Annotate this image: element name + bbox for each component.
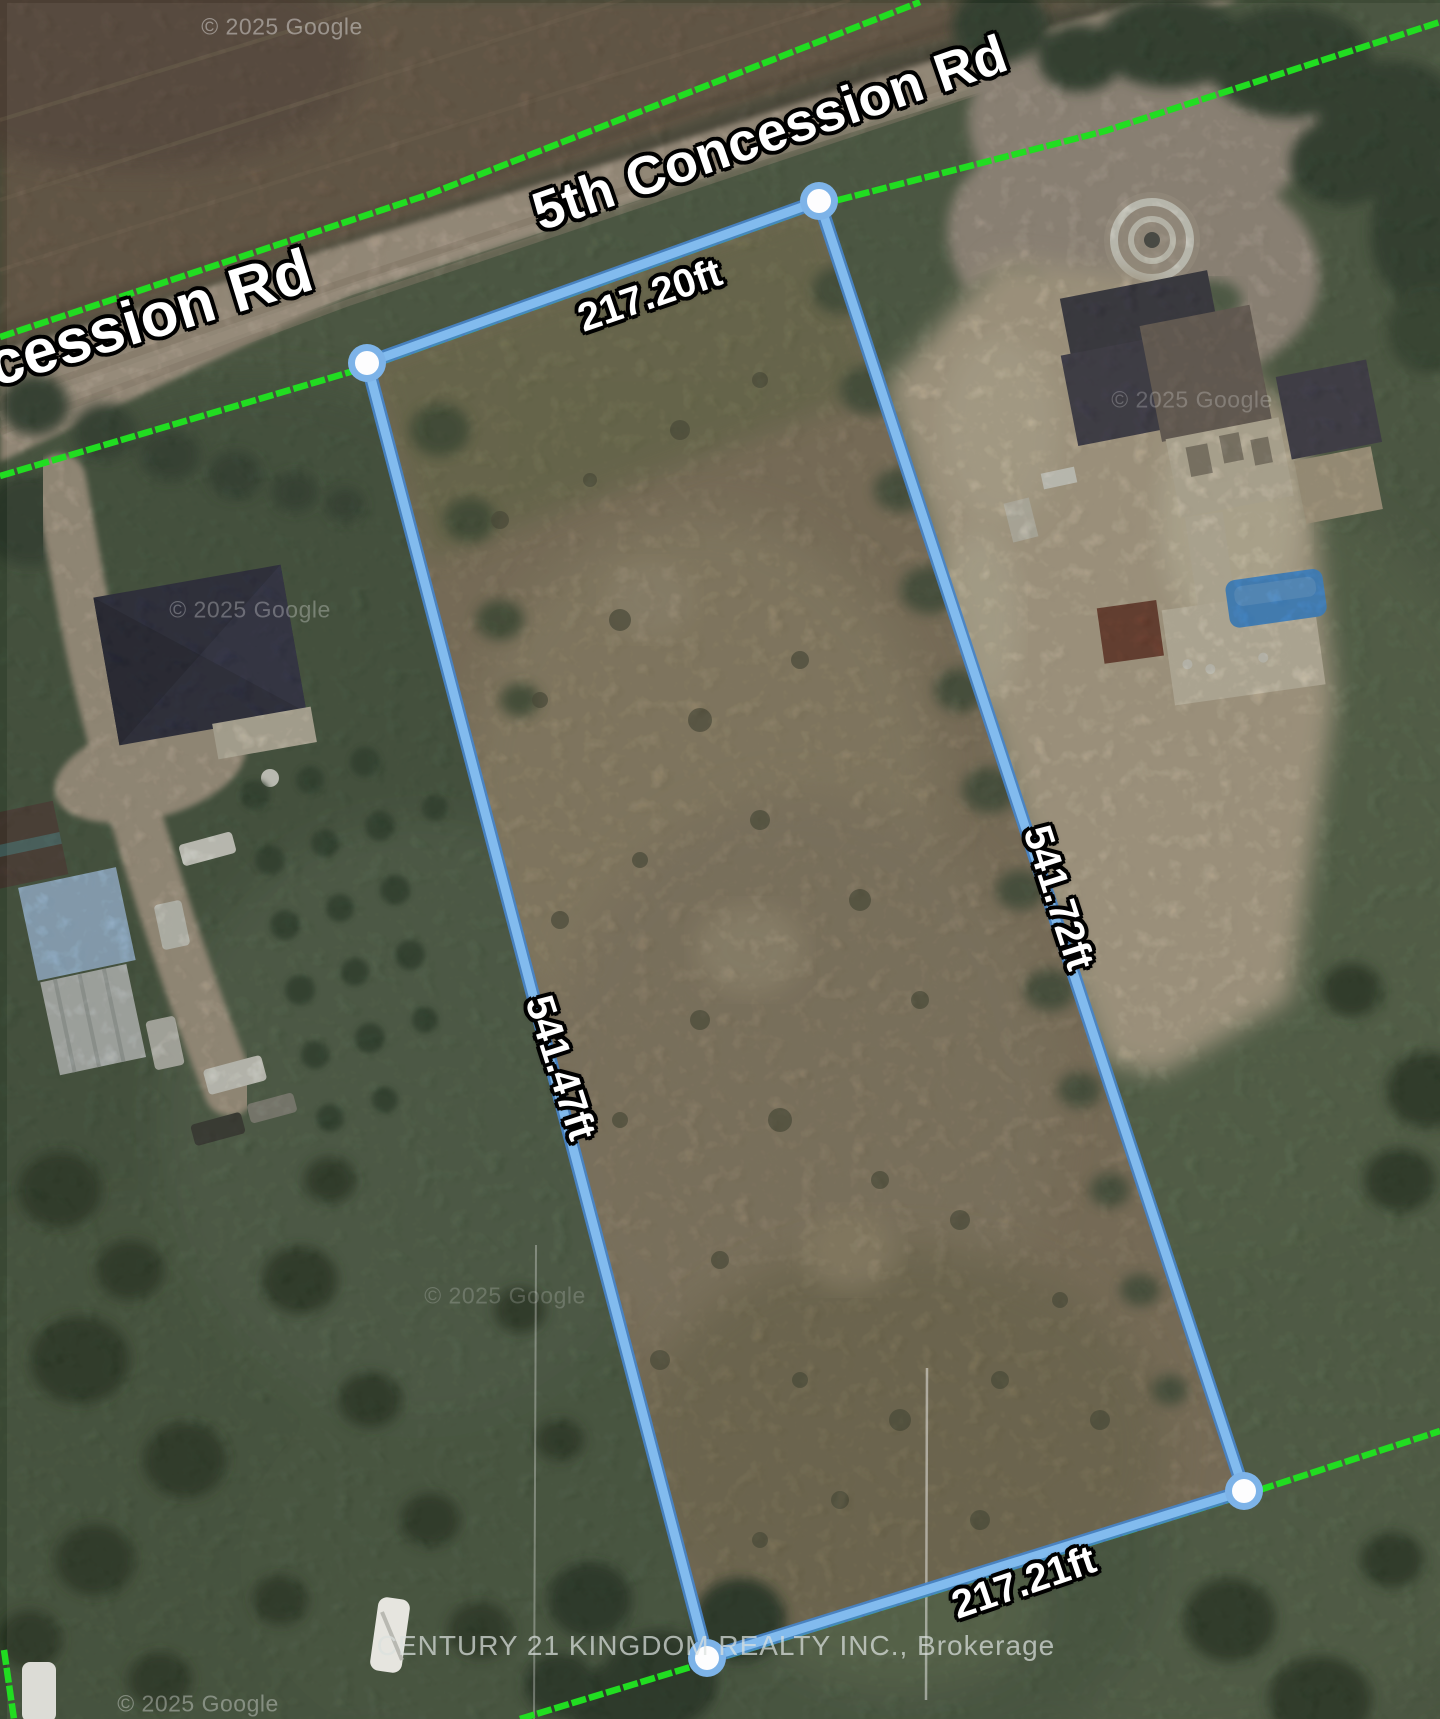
lot-vertex-bottom-left: [688, 1639, 726, 1677]
lot-vertex-top-right: [800, 182, 838, 220]
lot-vertex-top-left: [348, 344, 386, 382]
texture-noise: [0, 0, 1440, 1719]
satellite-map: 5th Concession Rd cession Rd 217.20ft 54…: [0, 0, 1440, 1719]
lot-vertex-bottom-right: [1225, 1472, 1263, 1510]
satellite-imagery: [0, 0, 1440, 1719]
